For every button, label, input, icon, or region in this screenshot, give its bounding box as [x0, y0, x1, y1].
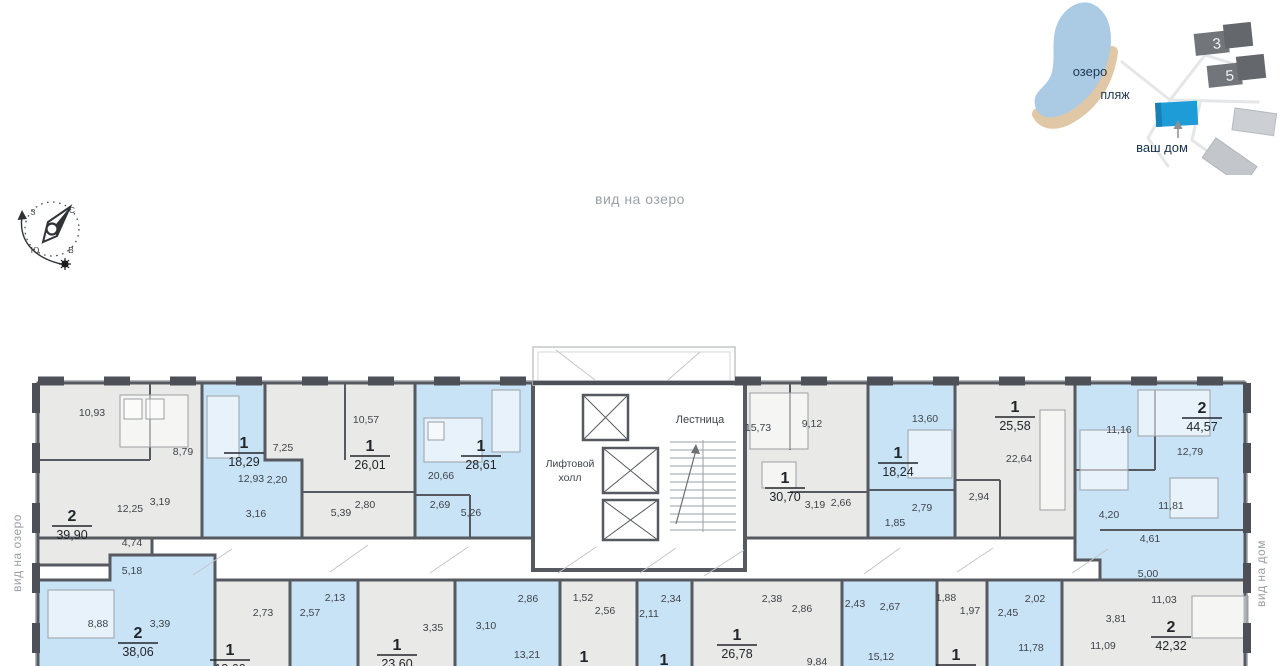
apartment-bottom-5[interactable]	[455, 580, 560, 666]
svg-text:18,24: 18,24	[882, 465, 913, 479]
room-area-label: 2,79	[912, 502, 933, 514]
room-area-label: 10,93	[79, 407, 105, 419]
room-area-label: 5,18	[122, 565, 143, 577]
room-area-label: 2,34	[661, 593, 682, 605]
room-area-label: 3,35	[423, 622, 444, 634]
room-area-label: 11,78	[1018, 642, 1044, 654]
svg-text:18,29: 18,29	[228, 455, 259, 469]
room-area-label: 15,12	[868, 651, 894, 663]
room-area-label: 2,69	[430, 499, 451, 511]
room-area-label: 22,64	[1006, 453, 1032, 465]
room-area-label: 2,02	[1025, 593, 1046, 605]
svg-text:1: 1	[952, 647, 961, 664]
room-area-label: 8,88	[88, 618, 109, 630]
room-area-label: 1,52	[573, 592, 594, 604]
svg-text:1: 1	[733, 627, 742, 644]
room-area-label: 3,39	[150, 618, 171, 630]
room-area-label: 1,88	[936, 592, 957, 604]
room-area-label: 13,60	[912, 413, 938, 425]
room-area-label: 1,85	[885, 517, 906, 529]
svg-text:28,61: 28,61	[465, 458, 496, 472]
room-area-label: 15,73	[745, 422, 771, 434]
svg-text:18,60: 18,60	[214, 662, 245, 666]
room-area-label: 7,25	[273, 442, 294, 454]
svg-text:38,06: 38,06	[122, 645, 153, 659]
room-area-label: 8,79	[173, 446, 194, 458]
room-area-label: 12,93	[238, 473, 264, 485]
room-area-label: 2,66	[831, 497, 852, 509]
roof-parapet	[533, 347, 735, 385]
svg-text:26,01: 26,01	[354, 458, 385, 472]
room-area-label: 3,19	[805, 499, 826, 511]
room-area-label: 4,61	[1140, 533, 1161, 545]
room-area-label: 2,86	[518, 593, 539, 605]
apartment-bottom-6[interactable]	[560, 580, 637, 666]
room-area-label: 9,84	[807, 656, 828, 666]
room-area-label: 2,38	[762, 593, 783, 605]
svg-text:1: 1	[580, 649, 589, 666]
room-area-label: 4,20	[1099, 509, 1120, 521]
elevator-hall-label: Лифтовой	[546, 458, 595, 470]
room-area-label: 3,10	[476, 620, 497, 632]
svg-text:2: 2	[1198, 400, 1207, 417]
room-area-label: 12,25	[117, 503, 143, 515]
room-area-label: 2,13	[325, 592, 346, 604]
room-area-label: 2,11	[639, 608, 659, 620]
svg-text:30,70: 30,70	[769, 490, 800, 504]
room-area-label: 9,12	[802, 418, 823, 430]
room-area-label: 1,97	[960, 605, 981, 617]
room-area-label: 11,16	[1106, 424, 1132, 436]
room-area-label: 3,19	[150, 496, 171, 508]
svg-text:1: 1	[1011, 399, 1020, 416]
svg-text:25,58: 25,58	[999, 419, 1030, 433]
room-area-label: 3,16	[246, 508, 267, 520]
room-area-label: 5,00	[1138, 568, 1159, 580]
room-area-label: 2,94	[969, 491, 990, 503]
svg-text:2: 2	[134, 625, 143, 642]
room-area-label: 5,39	[331, 507, 352, 519]
room-area-label: 2,67	[880, 601, 901, 613]
room-area-label: 12,79	[1177, 446, 1203, 458]
room-area-label: 2,43	[845, 598, 866, 610]
svg-text:1: 1	[781, 470, 790, 487]
svg-text:1: 1	[894, 445, 903, 462]
svg-text:1: 1	[366, 438, 375, 455]
svg-text:1: 1	[477, 438, 486, 455]
svg-text:1: 1	[660, 652, 669, 666]
room-area-label: 2,56	[595, 605, 616, 617]
room-area-label: 5,26	[461, 507, 482, 519]
room-area-label: 2,57	[300, 607, 321, 619]
svg-text:39,90: 39,90	[56, 528, 87, 542]
svg-text:1: 1	[393, 637, 402, 654]
room-area-label: 2,80	[355, 499, 376, 511]
room-area-label: 11,09	[1090, 640, 1116, 652]
elevator-hall-label: холл	[559, 472, 582, 484]
svg-text:23,60: 23,60	[381, 657, 412, 666]
svg-text:44,57: 44,57	[1186, 420, 1217, 434]
svg-text:1: 1	[226, 642, 235, 659]
stairs-label: Лестница	[676, 414, 725, 426]
svg-text:26,78: 26,78	[721, 647, 752, 661]
floorplan-page: вид на озеро вид на озеро вид на дом 3 5	[0, 0, 1280, 666]
room-area-label: 2,45	[998, 607, 1019, 619]
svg-text:1: 1	[240, 435, 249, 452]
room-area-label: 13,21	[514, 649, 540, 661]
floor-plan: Лифтовой холл Лестница	[0, 0, 1280, 666]
room-area-label: 4,74	[122, 537, 143, 549]
svg-text:42,32: 42,32	[1155, 639, 1186, 653]
room-area-label: 11,81	[1158, 500, 1184, 512]
room-area-label: 2,73	[253, 607, 274, 619]
svg-text:2: 2	[68, 508, 77, 525]
room-area-label: 3,81	[1106, 613, 1127, 625]
room-area-label: 2,86	[792, 603, 813, 615]
room-area-label: 10,57	[353, 414, 379, 426]
room-area-label: 11,03	[1151, 594, 1177, 606]
room-area-label: 2,20	[267, 474, 288, 486]
svg-text:2: 2	[1167, 619, 1176, 636]
room-area-label: 20,66	[428, 470, 454, 482]
